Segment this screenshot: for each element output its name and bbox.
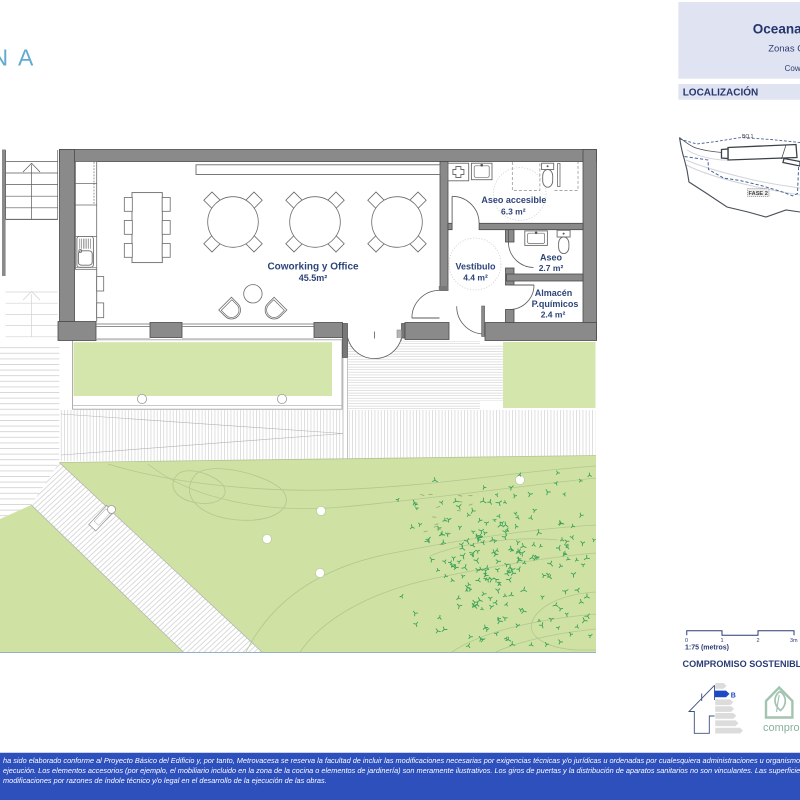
svg-text:2: 2 bbox=[757, 638, 760, 644]
svg-text:modificaciones por razones de: modificaciones por razones de índole téc… bbox=[3, 776, 327, 785]
svg-text:2.7 m²: 2.7 m² bbox=[539, 263, 564, 273]
svg-text:45.5m²: 45.5m² bbox=[299, 273, 328, 283]
svg-text:3m: 3m bbox=[790, 638, 798, 644]
svg-text:Vestíbulo: Vestíbulo bbox=[455, 261, 496, 271]
svg-text:Aseo: Aseo bbox=[540, 252, 563, 262]
svg-text:Oceana V: Oceana V bbox=[753, 22, 800, 37]
svg-text:ha sido elaborado conforme al: ha sido elaborado conforme al Proyecto B… bbox=[3, 756, 800, 765]
svg-text:0: 0 bbox=[685, 638, 688, 644]
svg-text:N: N bbox=[0, 45, 8, 71]
svg-text:Zonas Co: Zonas Co bbox=[768, 44, 800, 55]
svg-text:Coworking: Coworking bbox=[785, 64, 800, 73]
svg-text:1: 1 bbox=[721, 638, 724, 644]
svg-text:LOCALIZACIÓN: LOCALIZACIÓN bbox=[683, 86, 759, 99]
svg-text:4.4 m²: 4.4 m² bbox=[463, 272, 488, 282]
svg-text:COMPROMISO SOSTENIBLE: COMPROMISO SOSTENIBLE bbox=[683, 659, 800, 669]
svg-text:ejecución. Los elementos acces: ejecución. Los elementos accesorios (por… bbox=[3, 766, 800, 775]
svg-text:P.químicos: P.químicos bbox=[532, 299, 579, 309]
svg-text:1:75 (metros): 1:75 (metros) bbox=[685, 645, 729, 652]
svg-text:compromiso: compromiso bbox=[763, 722, 800, 734]
svg-text:BQ.1: BQ.1 bbox=[742, 134, 754, 140]
svg-text:Aseo accesible: Aseo accesible bbox=[481, 195, 546, 205]
svg-text:Almacén: Almacén bbox=[535, 288, 573, 298]
svg-text:B: B bbox=[731, 692, 736, 699]
svg-text:6.3 m²: 6.3 m² bbox=[501, 206, 526, 216]
svg-text:2.4 m²: 2.4 m² bbox=[541, 310, 566, 320]
svg-text:A: A bbox=[18, 45, 34, 71]
svg-text:FASE 2: FASE 2 bbox=[749, 191, 768, 197]
svg-text:Coworking y Office: Coworking y Office bbox=[267, 261, 359, 272]
